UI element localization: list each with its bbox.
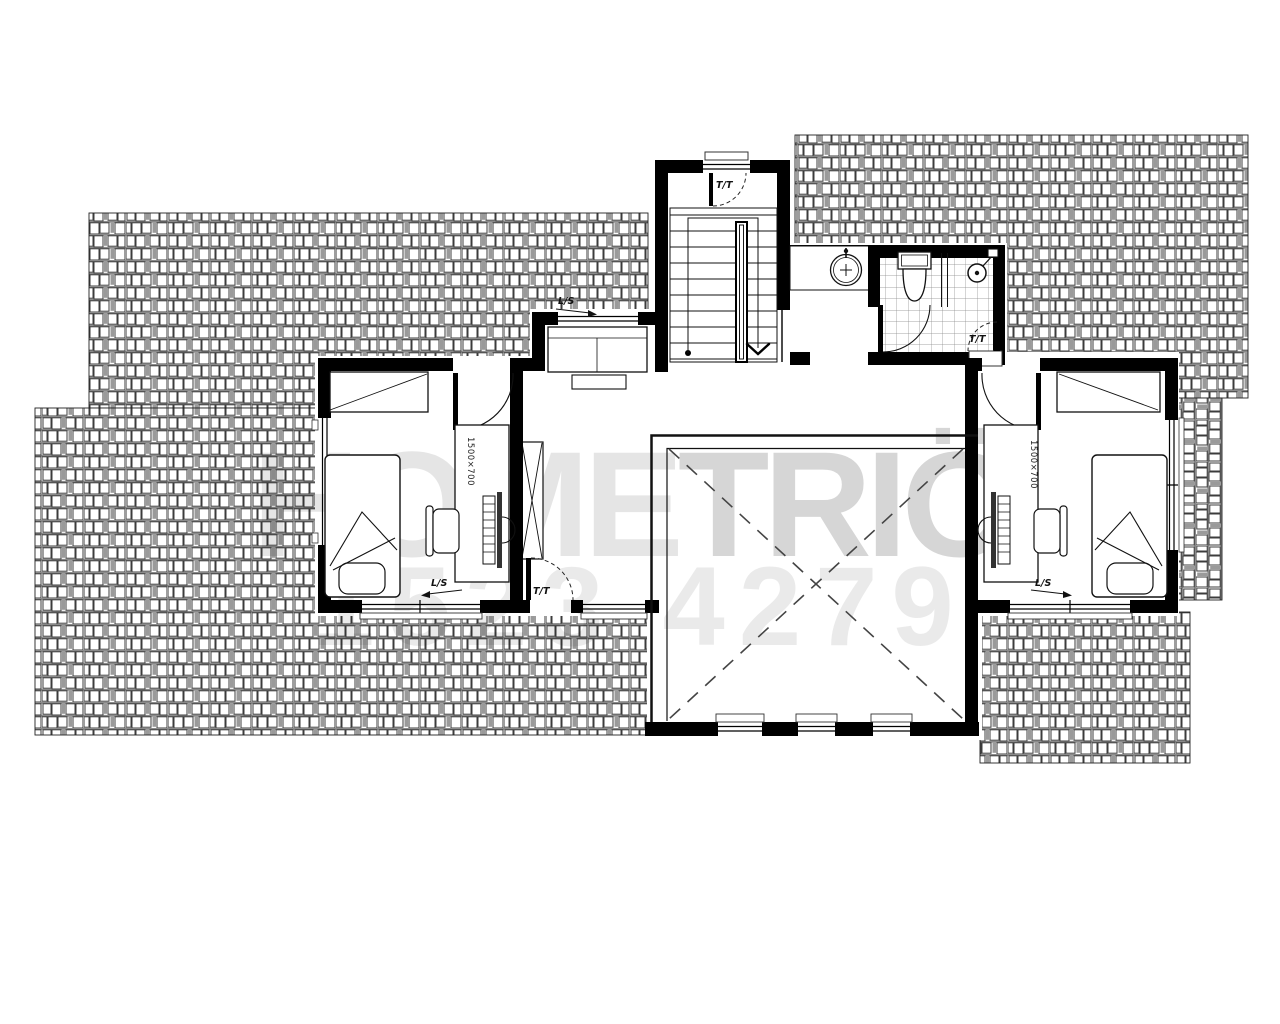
bedroom-right-bottom-window-sill bbox=[1008, 613, 1132, 619]
stair-top-window bbox=[703, 165, 750, 170]
bedroom-right-wardrobe bbox=[1057, 372, 1160, 412]
bathroom-door-tag: T/T bbox=[969, 334, 987, 345]
bedroom-left-ls-label: L/S bbox=[431, 578, 448, 589]
bedroom-left-bed bbox=[325, 455, 400, 597]
hall-door-tag: T/T bbox=[533, 586, 551, 597]
roof-bottom-right bbox=[980, 612, 1190, 763]
desk-chair bbox=[426, 506, 459, 556]
bedroom-right-window-sill bbox=[1179, 418, 1184, 552]
bedroom-left-window-sill-top bbox=[312, 420, 318, 430]
stair-handrail bbox=[736, 222, 747, 362]
monitor bbox=[991, 492, 996, 568]
stair-treads bbox=[670, 208, 777, 362]
hall-ls-label: L/S bbox=[558, 296, 575, 307]
stair-top-window-sill bbox=[705, 152, 748, 160]
bedroom-left-bottom-window-sill bbox=[360, 613, 482, 619]
bedroom-right-desk-size-label: 1500×700 bbox=[1028, 440, 1038, 489]
bathroom: T/T bbox=[868, 245, 1005, 366]
keyboard bbox=[483, 496, 495, 564]
monitor bbox=[497, 492, 502, 568]
vanity-basin bbox=[790, 246, 872, 290]
keyboard bbox=[998, 496, 1010, 564]
bedroom-right-bed bbox=[1092, 455, 1167, 597]
desk-chair bbox=[1034, 506, 1067, 556]
bedroom-left-window-sill-bottom bbox=[312, 533, 318, 543]
hall-bottom-window-sill bbox=[581, 613, 647, 619]
floor-plan-canvas: HOMETRIÖ 1523 4279 bbox=[0, 0, 1280, 1024]
hall-wardrobe bbox=[521, 442, 543, 559]
bedroom-right-ls-label: L/S bbox=[1035, 578, 1052, 589]
stair-direction-arrow bbox=[685, 218, 769, 356]
bedroom-left-desk-size-label: 1500×700 bbox=[465, 437, 475, 486]
watermark-serial: 1523 4279 bbox=[312, 544, 967, 669]
staircase: T/T bbox=[655, 152, 790, 372]
roof-right-strip bbox=[1178, 398, 1222, 600]
void-window-sills bbox=[716, 714, 912, 722]
bedroom-left-wardrobe bbox=[330, 372, 428, 412]
stair-door-tag: T/T bbox=[716, 180, 734, 191]
floor-plan-drawing: HOMETRIÖ 1523 4279 bbox=[0, 0, 1280, 1024]
